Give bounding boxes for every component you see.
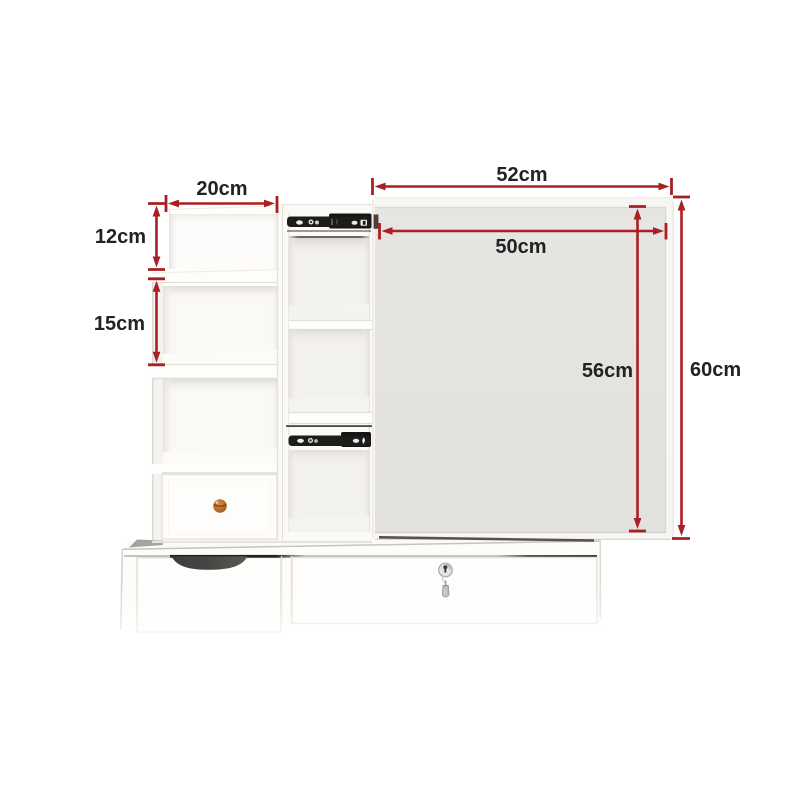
svg-text:52cm: 52cm <box>496 164 547 186</box>
svg-text:20cm: 20cm <box>196 178 247 200</box>
svg-text:15cm: 15cm <box>94 313 145 335</box>
svg-text:12cm: 12cm <box>95 226 146 248</box>
svg-text:56cm: 56cm <box>582 360 633 382</box>
svg-text:60cm: 60cm <box>690 359 741 381</box>
svg-text:50cm: 50cm <box>495 236 546 258</box>
